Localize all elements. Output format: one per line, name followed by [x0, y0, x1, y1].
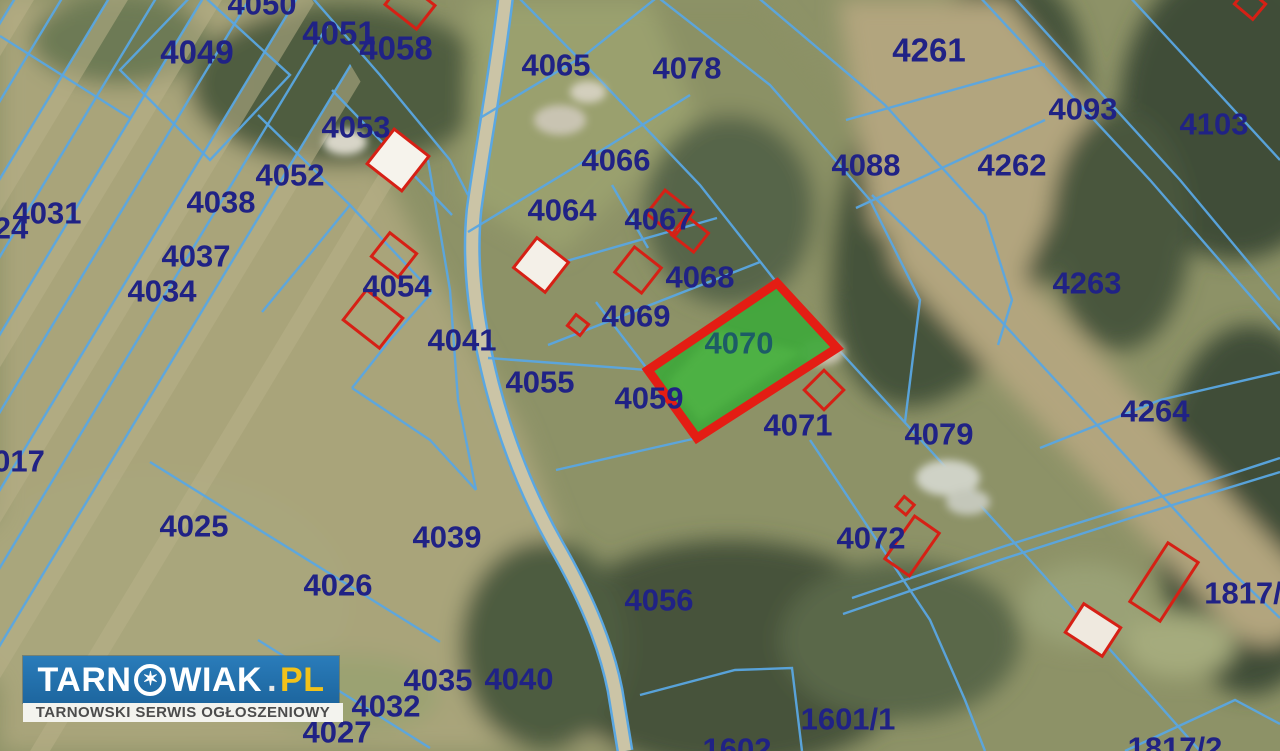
logo-star-icon: ✶ — [134, 664, 166, 696]
aerial-map-graphics — [0, 0, 1280, 751]
logo-brand-dot: . — [267, 663, 277, 697]
watermark-logo: TARN ✶ WIAK . PL TARNOWSKI SERWIS OGŁOSZ… — [23, 656, 343, 722]
logo-brand-part2: WIAK — [169, 663, 262, 697]
map-canvas[interactable]: 4050404940514058405340524038403124403740… — [0, 0, 1280, 751]
logo-brand-part1: TARN — [38, 663, 132, 697]
logo-bar: TARN ✶ WIAK . PL — [23, 656, 339, 703]
logo-tagline: TARNOWSKI SERWIS OGŁOSZENIOWY — [23, 703, 343, 722]
logo-brand-tld: PL — [280, 663, 324, 697]
